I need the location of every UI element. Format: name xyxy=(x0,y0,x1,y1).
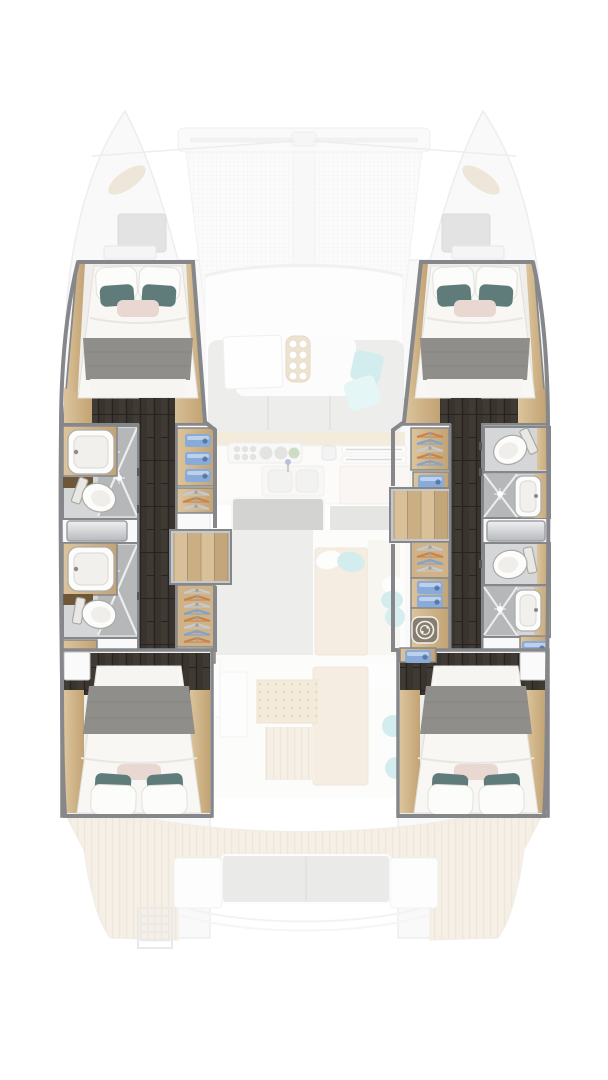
starboard-fore-bed xyxy=(415,266,535,398)
port-fwd-bathroom xyxy=(63,426,139,519)
port-storage xyxy=(177,428,215,513)
cockpit-grating xyxy=(257,680,317,723)
port-fore-bed xyxy=(78,266,198,398)
saloon-table xyxy=(223,335,283,389)
starboard-aft-cabin xyxy=(398,648,548,816)
starboard-door-handle-1 xyxy=(479,442,482,450)
port-basin-fwd xyxy=(68,430,114,474)
starboard-hull xyxy=(390,262,550,816)
sun-lounger-aft xyxy=(313,667,368,785)
galley-plant xyxy=(289,448,300,459)
port-door-handle-2 xyxy=(137,505,140,513)
port-door-handle-1 xyxy=(137,468,140,476)
starboard-laundry xyxy=(411,608,449,650)
port-hull-window xyxy=(67,521,127,541)
port-aft-bathroom xyxy=(63,543,139,638)
starboard-door-handle-2 xyxy=(479,468,482,476)
port-aft-bed xyxy=(77,666,201,816)
starboard-stairs xyxy=(390,488,451,542)
port-cabin-skylight xyxy=(104,246,156,259)
starboard-corridor xyxy=(451,398,481,690)
port-stairs xyxy=(170,530,231,584)
washer-icon xyxy=(412,617,438,643)
galley xyxy=(205,432,410,538)
aft-bench-armrest-port xyxy=(174,858,222,908)
floor-plan-svg xyxy=(0,0,608,1080)
port-aft-cabin xyxy=(62,650,212,816)
aft-deck xyxy=(63,800,545,948)
galley-mat xyxy=(330,506,392,532)
port-basin-aft xyxy=(68,547,114,591)
starboard-aft-cabinet xyxy=(520,652,546,680)
galley-knob-panel xyxy=(322,446,336,460)
cockpit-cabinet-2 xyxy=(220,672,247,737)
galley-faucet xyxy=(285,459,291,465)
starboard-storage xyxy=(411,428,449,492)
aft-bench-armrest-starboard xyxy=(390,858,438,908)
starboard-shower-aft xyxy=(484,587,517,635)
starboard-aft-bed xyxy=(414,666,538,816)
port-door-handle-3 xyxy=(137,592,140,600)
port-aft-cabinet xyxy=(64,652,90,680)
starboard-basin-fwd xyxy=(515,476,541,517)
starboard-cabin-skylight xyxy=(452,246,504,259)
cockpit-deck-planks xyxy=(265,727,315,780)
starboard-fwd-bathroom xyxy=(484,427,550,518)
starboard-basin-aft xyxy=(515,590,541,631)
starboard-shower-fwd xyxy=(484,474,517,517)
port-fore-cabin xyxy=(64,262,205,424)
catamaran-floor-plan xyxy=(0,0,608,1080)
starboard-aft-bathroom xyxy=(484,543,550,637)
starboard-wardrobe xyxy=(411,542,449,608)
saloon xyxy=(205,264,404,432)
starboard-hull-window xyxy=(487,521,545,541)
starboard-door-handle-3 xyxy=(479,560,482,568)
